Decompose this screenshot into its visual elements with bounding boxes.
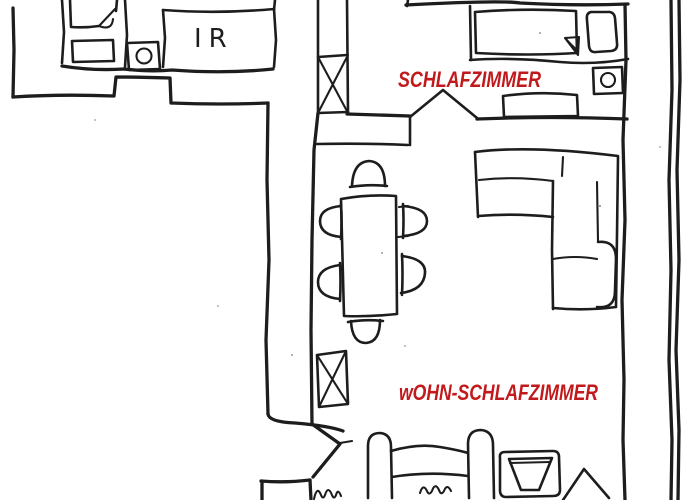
corner-sofa-cushion-line xyxy=(597,182,598,241)
bedroom-furniture xyxy=(470,6,628,117)
chair-back xyxy=(401,256,425,293)
sofa-seat-line xyxy=(392,474,468,477)
door-swing-chevron xyxy=(312,424,340,477)
room-ir-right-wall xyxy=(274,9,276,67)
open-door-swing xyxy=(410,90,477,118)
door-jamb-bottom xyxy=(261,480,310,482)
washbasin-bowl-icon xyxy=(137,49,152,64)
chair-bottom xyxy=(348,320,383,343)
tv-screen-top-line xyxy=(510,462,550,463)
nook-top-wall xyxy=(347,114,410,116)
mattress xyxy=(475,10,577,55)
floorplan-svg: IR xyxy=(0,0,700,500)
corner-sofa-cushion xyxy=(597,242,616,307)
corridor-left-wall xyxy=(266,103,269,414)
bedroom-bottom-wall xyxy=(477,118,627,120)
shaft-lower-cross xyxy=(317,351,348,407)
chair-back xyxy=(320,206,341,237)
chair-right-lower xyxy=(401,254,425,295)
living-bedroom-label: wOHN-SCHLAFZIMMER xyxy=(399,380,598,405)
tv-table xyxy=(500,451,560,497)
chair-back xyxy=(352,161,385,186)
corner-sofa xyxy=(475,149,618,309)
speck xyxy=(599,205,601,207)
speck xyxy=(217,305,219,307)
corner-sofa-divider xyxy=(553,257,597,259)
dining-set xyxy=(318,161,427,343)
room-ir: IR xyxy=(163,9,276,67)
dresser xyxy=(503,93,578,117)
chair-seat-line xyxy=(340,263,341,301)
shaft-upper xyxy=(318,0,348,113)
chair-left-lower xyxy=(318,263,341,301)
shaft-upper-divider xyxy=(318,55,347,57)
sofa xyxy=(368,430,494,498)
chair-seat-line xyxy=(341,204,342,239)
sketch-squiggle-sofa xyxy=(420,486,451,493)
floorplan-sketch: IR xyxy=(0,0,700,500)
bed xyxy=(470,6,628,63)
chair-top xyxy=(350,161,387,187)
chair-seat-line xyxy=(348,320,383,322)
chair-seat-line xyxy=(403,204,404,238)
wall-tick-top xyxy=(407,0,408,6)
chair-right-upper xyxy=(398,204,427,238)
shaft-lower xyxy=(317,351,348,407)
corner-sofa-notch xyxy=(562,157,563,176)
room-ir-left-wall xyxy=(163,10,165,67)
chair-seat-line xyxy=(350,185,387,187)
sketch-squiggle-door xyxy=(314,490,341,499)
corner-sofa-bottom xyxy=(553,307,616,309)
washbasin xyxy=(127,42,160,70)
bed-small xyxy=(70,0,117,27)
bed-bottom-edge xyxy=(470,59,628,63)
triangle-object xyxy=(563,469,609,500)
corner-sofa-left-edge xyxy=(475,152,478,217)
sofa-armrest-right xyxy=(468,430,494,498)
room-ir-label: IR xyxy=(194,24,234,54)
speck xyxy=(94,119,96,121)
speck xyxy=(539,32,541,34)
scan-specks xyxy=(94,32,661,356)
door-swing-tick xyxy=(340,441,352,443)
bedroom-label: SCHLAFZIMMER xyxy=(398,67,541,92)
corner-sofa-back-top xyxy=(475,149,618,156)
chair-seat-line xyxy=(402,254,403,295)
nook-bottom-wall xyxy=(317,144,408,145)
speck xyxy=(404,345,406,347)
corner-sofa-back-line xyxy=(479,178,553,181)
shaft-upper-bottom xyxy=(318,112,348,113)
utility-left-wall xyxy=(62,0,64,63)
entry-door xyxy=(261,414,352,500)
nightstand xyxy=(593,67,623,94)
chair-back xyxy=(403,206,427,236)
corner-sofa-vertical-left xyxy=(552,181,553,309)
washbasin-box xyxy=(127,42,160,70)
corner-sofa-seat-bottom xyxy=(478,215,553,217)
chair-left-upper xyxy=(320,204,342,239)
left-outer-wall xyxy=(13,8,14,97)
sofa-backrest xyxy=(391,446,468,453)
right-outer-wall-b xyxy=(676,0,680,500)
speck xyxy=(291,354,293,356)
corridor-right-wall-lower xyxy=(310,480,311,500)
blanket-fold-icon xyxy=(99,9,115,27)
bedroom-top-wall xyxy=(406,2,628,5)
corner-sofa-right-edge xyxy=(616,157,618,306)
door-jamb-top xyxy=(268,414,343,431)
right-outer-wall-a xyxy=(669,0,672,500)
bed-left-edge xyxy=(470,6,471,60)
sofa-armrest-left xyxy=(368,433,392,498)
chair-back xyxy=(318,265,340,299)
chair-back xyxy=(351,320,380,343)
room-ir-top-wall xyxy=(163,9,274,12)
pillow xyxy=(587,12,617,52)
utility-bottom-wall xyxy=(62,66,273,72)
speck xyxy=(381,252,383,254)
nightstand-box xyxy=(593,67,623,94)
shaft-upper-cross xyxy=(318,55,348,113)
lamp-icon xyxy=(601,73,615,87)
speck xyxy=(659,146,661,148)
cabinet xyxy=(72,40,114,62)
dining-table xyxy=(341,195,397,316)
hall-bottom-wall xyxy=(13,77,268,104)
utility-right-wall xyxy=(125,0,127,67)
